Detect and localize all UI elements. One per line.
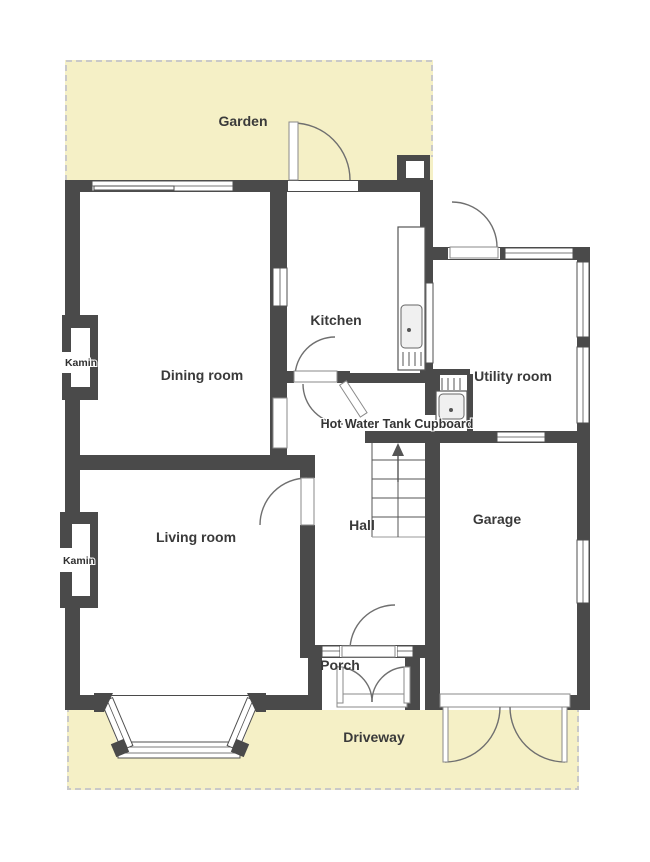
kitchen-door-leaf: [294, 371, 337, 382]
utility-garage-window: [497, 432, 545, 442]
garage-right-window: [577, 540, 589, 603]
floor-plan-canvas: Garden Dining room Kitchen Utility room …: [0, 0, 650, 862]
hall-label: Hall: [349, 517, 375, 533]
wall-garage-top: [365, 431, 590, 443]
garage-door-leaf-right: [562, 707, 567, 762]
sink-drain: [407, 328, 411, 332]
living-door-leaf: [301, 478, 314, 525]
wall-dining-living-divider: [65, 455, 315, 470]
driveway-label: Driveway: [343, 729, 405, 745]
kitchen-counter: [398, 227, 425, 370]
chimney-flue: [406, 161, 424, 178]
dining-kitchen-hatch-window: [273, 268, 287, 306]
wall-left: [65, 180, 80, 710]
front-sidelight-right: [397, 646, 413, 657]
wall-cupboard-top: [335, 373, 425, 383]
porch-label: Porch: [320, 657, 360, 673]
dining-top-window: [92, 181, 233, 191]
dining-hall-door-leaf: [273, 398, 287, 448]
bay-window: [94, 693, 266, 758]
bay-window-bottom: [118, 742, 240, 758]
garage-door-leaf-left: [443, 707, 448, 762]
garden-door-leaf: [289, 122, 298, 180]
tank-drain: [449, 408, 453, 412]
utility-right-window-1: [577, 262, 589, 337]
front-door-leaf: [342, 646, 395, 657]
front-sidelight-left: [322, 646, 340, 657]
utility-right-window-2: [577, 347, 589, 423]
sink-icon: [401, 305, 422, 348]
kitchen-sink-unit: [398, 227, 425, 370]
kamin-dining-label: Kamin: [65, 357, 97, 369]
kamin-living-label: Kamin: [63, 555, 95, 567]
hot-water-tank-cupboard-label: Hot Water Tank Cupboard: [321, 417, 474, 431]
tank-inner: [439, 394, 464, 419]
garage-label: Garage: [473, 511, 521, 527]
utility-top-window: [505, 248, 573, 259]
staircase: [372, 443, 425, 537]
porch-door-leaf-right: [404, 667, 410, 703]
garage-door-threshold: [440, 694, 570, 707]
dining-room-label: Dining room: [161, 367, 243, 383]
wall-garage-left: [425, 437, 440, 710]
living-room-label: Living room: [156, 529, 236, 545]
floor-plan: Garden Dining room Kitchen Utility room …: [0, 0, 650, 862]
garden-label: Garden: [218, 113, 267, 129]
garden-door-opening: [288, 181, 358, 191]
kitchen-label: Kitchen: [310, 312, 361, 328]
utility-room-label: Utility room: [474, 368, 552, 384]
wall-cupboard-partition-top: [433, 369, 470, 375]
utility-door-leaf: [450, 247, 498, 258]
